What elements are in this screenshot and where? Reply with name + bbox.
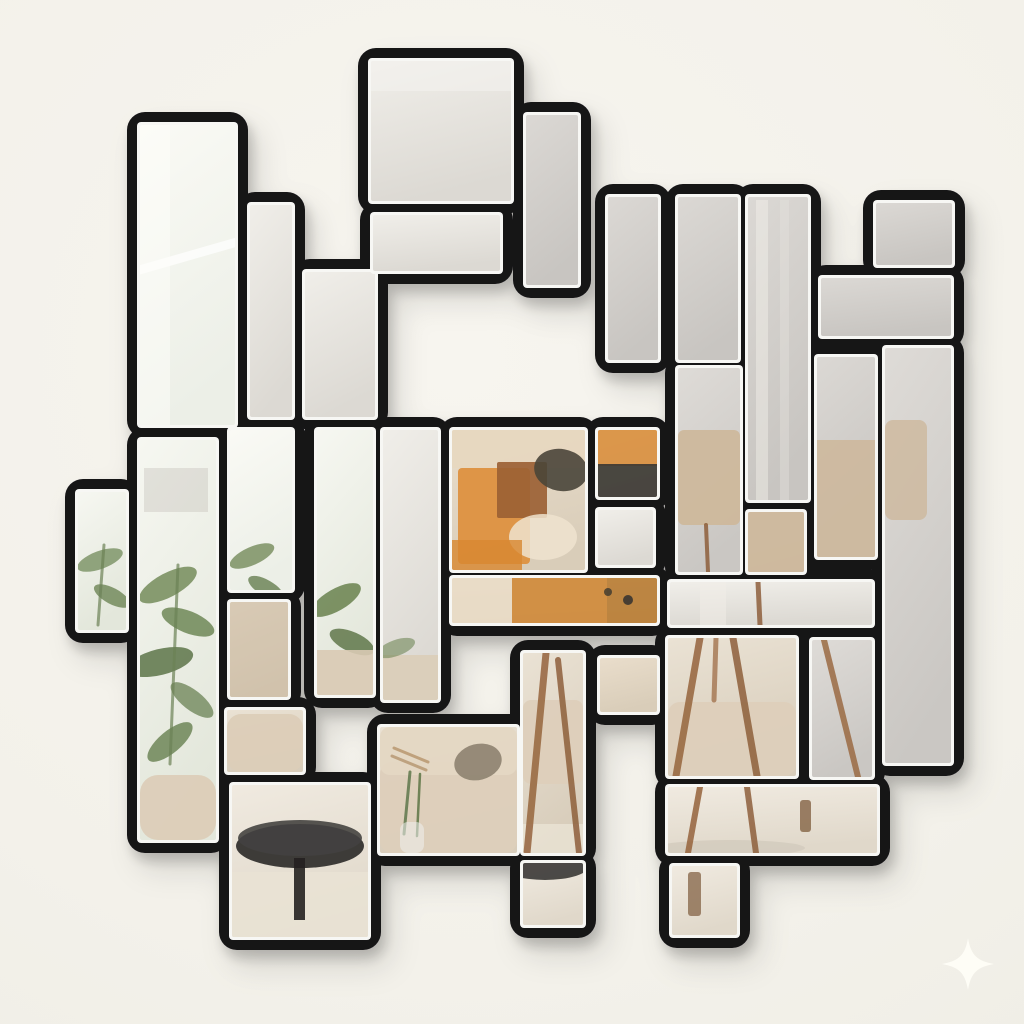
tile-right-tall-column [885,348,951,763]
tile-leather-small [600,658,657,712]
tetris-mirror [0,0,1024,1024]
tile-horiz-under-square [373,215,500,271]
tile-top-bar-1 [608,197,658,360]
tile-z-lower-bar [821,278,951,336]
tile-top-bar-2 [678,197,738,360]
tile-thin-bar [250,205,292,417]
mirror-group [65,48,965,950]
tile-floor-notch [672,866,737,935]
tile-z-top-square [876,203,952,265]
tile-vert-right-of-square [526,115,578,285]
tile-step-bar [305,272,375,417]
tile-small-wall-square [598,510,653,565]
sparkle-icon [942,938,994,990]
wall-background [0,0,1024,1024]
